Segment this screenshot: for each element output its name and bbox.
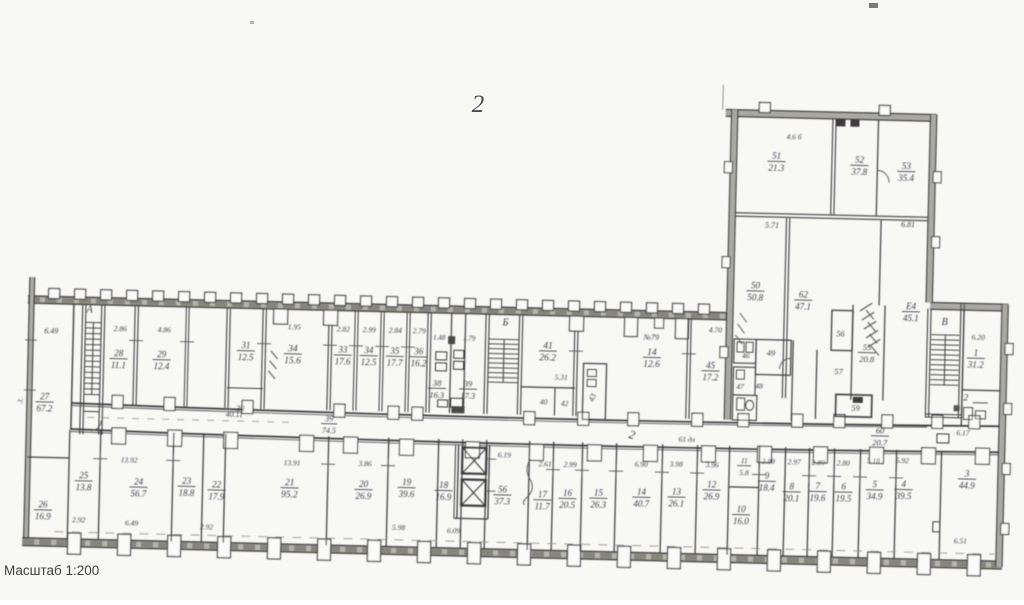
svg-text:10: 10 xyxy=(737,504,747,514)
svg-text:5.71: 5.71 xyxy=(765,221,779,230)
svg-text:51: 51 xyxy=(772,151,781,161)
svg-text:45: 45 xyxy=(706,360,716,370)
svg-text:27: 27 xyxy=(40,391,50,401)
svg-text:62: 62 xyxy=(799,289,809,299)
svg-text:57: 57 xyxy=(834,366,843,376)
svg-text:16.2: 16.2 xyxy=(411,358,427,368)
svg-text:5.8: 5.8 xyxy=(739,468,749,477)
svg-text:50: 50 xyxy=(751,280,761,290)
svg-text:41: 41 xyxy=(543,341,553,351)
svg-text:2.82: 2.82 xyxy=(337,324,351,333)
svg-text:74.5: 74.5 xyxy=(322,426,336,435)
svg-text:6: 6 xyxy=(841,482,846,492)
svg-text:38: 38 xyxy=(432,378,442,388)
svg-text:3.86: 3.86 xyxy=(357,459,372,468)
svg-text:33: 33 xyxy=(337,344,348,354)
svg-text:11.1: 11.1 xyxy=(111,360,126,370)
svg-text:5.31: 5.31 xyxy=(555,373,568,382)
svg-text:5.98: 5.98 xyxy=(392,523,406,532)
svg-text:39: 39 xyxy=(324,414,333,423)
svg-text:6.09: 6.09 xyxy=(447,526,461,535)
svg-text:6.90: 6.90 xyxy=(635,460,649,469)
svg-text:4: 4 xyxy=(901,479,906,489)
svg-text:2.84: 2.84 xyxy=(389,326,403,335)
svg-text:59: 59 xyxy=(851,403,860,413)
svg-text:52: 52 xyxy=(855,155,865,165)
svg-text:56.7: 56.7 xyxy=(130,488,146,498)
svg-text:31.2: 31.2 xyxy=(967,360,984,370)
svg-text:2.89: 2.89 xyxy=(762,457,776,466)
svg-text:19.5: 19.5 xyxy=(835,493,851,503)
svg-text:13.91: 13.91 xyxy=(284,458,301,467)
svg-text:16.0: 16.0 xyxy=(733,516,749,526)
svg-text:6.49: 6.49 xyxy=(44,326,58,335)
svg-text:29: 29 xyxy=(157,349,167,359)
svg-text:2: 2 xyxy=(964,392,969,402)
svg-text:28: 28 xyxy=(114,348,124,358)
svg-text:4.86: 4.86 xyxy=(158,325,172,334)
svg-text:26.9: 26.9 xyxy=(355,491,371,501)
svg-text:А: А xyxy=(86,304,94,315)
svg-text:6.19: 6.19 xyxy=(498,450,512,459)
svg-text:В: В xyxy=(942,317,948,328)
svg-text:17.6: 17.6 xyxy=(335,356,351,366)
svg-text:26.9: 26.9 xyxy=(703,491,719,501)
svg-text:47.1: 47.1 xyxy=(795,301,811,311)
svg-text:24: 24 xyxy=(134,477,144,487)
svg-text:26.3: 26.3 xyxy=(590,500,606,510)
svg-text:20.7: 20.7 xyxy=(872,437,888,447)
svg-text:40.7: 40.7 xyxy=(633,499,649,509)
svg-text:2.99: 2.99 xyxy=(564,460,578,469)
svg-text:36: 36 xyxy=(413,346,424,356)
svg-text:61 дл: 61 дл xyxy=(678,435,695,444)
svg-text:2.86: 2.86 xyxy=(114,324,128,333)
svg-text:17: 17 xyxy=(538,489,548,499)
svg-text:53: 53 xyxy=(902,161,912,171)
svg-text:13: 13 xyxy=(672,486,682,496)
svg-text:42: 42 xyxy=(561,399,569,408)
svg-text:18.4: 18.4 xyxy=(759,483,775,493)
svg-text:50.8: 50.8 xyxy=(747,292,763,302)
svg-text:6.51: 6.51 xyxy=(954,536,967,545)
svg-text:67.2: 67.2 xyxy=(36,403,52,413)
svg-text:№79: №79 xyxy=(642,333,659,342)
svg-text:17.2: 17.2 xyxy=(702,372,718,382)
svg-text:12.4: 12.4 xyxy=(153,361,169,371)
svg-text:18: 18 xyxy=(439,480,449,490)
svg-text:25: 25 xyxy=(79,470,89,480)
svg-text:20.5: 20.5 xyxy=(559,500,575,510)
svg-text:46: 46 xyxy=(742,351,750,360)
svg-text:2.92: 2.92 xyxy=(200,522,214,531)
svg-text:11.7: 11.7 xyxy=(535,501,551,511)
svg-text:35: 35 xyxy=(389,346,400,356)
svg-text:4.70: 4.70 xyxy=(709,325,723,334)
svg-text:1.48: 1.48 xyxy=(433,334,446,342)
svg-text:16.3: 16.3 xyxy=(429,390,444,400)
svg-text:15: 15 xyxy=(594,488,604,498)
svg-text:34.9: 34.9 xyxy=(866,491,883,501)
svg-text:12.5: 12.5 xyxy=(361,357,377,367)
svg-text:6.20: 6.20 xyxy=(972,333,986,342)
svg-text:95.2: 95.2 xyxy=(281,490,298,500)
svg-text:18.8: 18.8 xyxy=(178,488,194,498)
svg-text:30: 30 xyxy=(235,404,244,413)
svg-text:56: 56 xyxy=(498,484,508,494)
svg-text:6.81: 6.81 xyxy=(901,220,915,229)
svg-text:26.1: 26.1 xyxy=(668,498,684,508)
svg-text:2.80: 2.80 xyxy=(837,458,851,467)
svg-text:5.92: 5.92 xyxy=(896,456,910,465)
svg-text:2.61: 2.61 xyxy=(539,459,552,468)
svg-text:3: 3 xyxy=(964,468,970,478)
svg-text:2.79: 2.79 xyxy=(413,326,427,335)
svg-text:2: 2 xyxy=(472,91,485,118)
svg-text:47: 47 xyxy=(736,382,744,391)
svg-text:44.9: 44.9 xyxy=(959,480,975,490)
svg-text:14: 14 xyxy=(647,348,657,358)
svg-text:6.17: 6.17 xyxy=(956,428,970,437)
svg-text:19: 19 xyxy=(402,477,412,487)
svg-text:11: 11 xyxy=(741,456,748,465)
svg-text:14: 14 xyxy=(637,487,647,497)
svg-text:45.1: 45.1 xyxy=(903,313,919,323)
svg-text:31: 31 xyxy=(240,340,250,350)
svg-text:17.7: 17.7 xyxy=(387,358,403,368)
svg-text:12.6: 12.6 xyxy=(643,360,660,370)
svg-text:34: 34 xyxy=(287,344,298,354)
svg-text:26: 26 xyxy=(38,499,48,509)
svg-text:20.8: 20.8 xyxy=(859,354,875,364)
svg-text:56: 56 xyxy=(836,329,844,338)
svg-text:26.2: 26.2 xyxy=(539,353,556,363)
svg-text:2.92: 2.92 xyxy=(72,515,86,524)
svg-text:7: 7 xyxy=(815,481,820,491)
svg-text:13.92: 13.92 xyxy=(121,455,138,464)
svg-text:3.98: 3.98 xyxy=(669,459,684,468)
svg-text:20.1: 20.1 xyxy=(783,493,799,503)
svg-text:34: 34 xyxy=(363,345,374,355)
svg-text:5: 5 xyxy=(872,479,877,489)
svg-text:16.9: 16.9 xyxy=(35,511,51,521)
svg-text:8: 8 xyxy=(789,481,794,491)
svg-text:20: 20 xyxy=(359,479,369,489)
svg-text:9: 9 xyxy=(765,471,770,481)
svg-text:Б: Б xyxy=(501,317,508,328)
svg-text:15.6: 15.6 xyxy=(284,356,301,366)
svg-text:2.99: 2.99 xyxy=(363,325,377,334)
svg-text:2.89: 2.89 xyxy=(812,458,826,467)
svg-text:23: 23 xyxy=(182,476,192,486)
svg-text:39.5: 39.5 xyxy=(895,491,912,501)
svg-text:21: 21 xyxy=(285,478,295,488)
svg-text:2.97: 2.97 xyxy=(788,457,802,466)
svg-text:1: 1 xyxy=(974,348,979,358)
svg-text:21.3: 21.3 xyxy=(768,163,784,173)
svg-text:1.95: 1.95 xyxy=(288,322,302,331)
svg-text:13.8: 13.8 xyxy=(76,482,92,492)
svg-text:16.9: 16.9 xyxy=(435,492,451,502)
svg-text:16: 16 xyxy=(563,488,573,498)
svg-text:37.8: 37.8 xyxy=(850,167,867,177)
svg-text:17.9: 17.9 xyxy=(208,491,224,501)
svg-text:39.6: 39.6 xyxy=(397,489,414,499)
svg-text:12.5: 12.5 xyxy=(238,352,254,362)
svg-text:35.4: 35.4 xyxy=(897,173,914,183)
svg-text:3.96: 3.96 xyxy=(705,460,720,469)
svg-text:55: 55 xyxy=(863,342,872,352)
svg-text:12: 12 xyxy=(707,479,717,489)
svg-text:37.3: 37.3 xyxy=(493,496,510,506)
svg-text:22: 22 xyxy=(212,479,222,489)
svg-text:Е4: Е4 xyxy=(905,301,917,311)
svg-text:19.6: 19.6 xyxy=(809,493,825,503)
svg-text:4.6 б: 4.6 б xyxy=(786,132,801,141)
svg-text:6.49: 6.49 xyxy=(125,518,139,527)
svg-text:Масштаб 1:200: Масштаб 1:200 xyxy=(4,563,99,578)
svg-text:48: 48 xyxy=(755,381,763,390)
svg-text:40: 40 xyxy=(540,397,548,406)
svg-text:5.18: 5.18 xyxy=(867,456,881,465)
svg-text:49: 49 xyxy=(767,348,776,358)
